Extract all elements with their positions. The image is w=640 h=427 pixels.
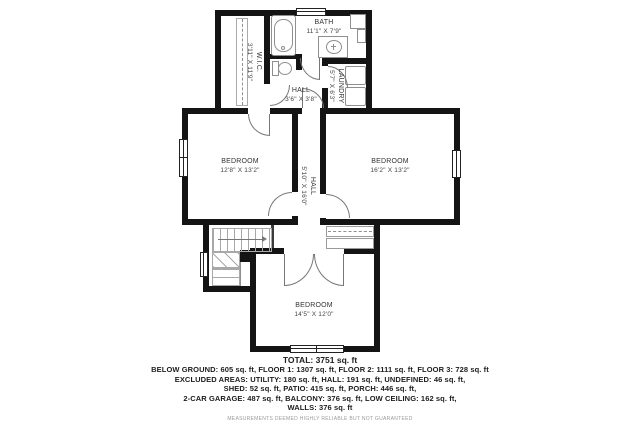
disclaimer-text: MEASUREMENTS DEEMED HIGHLY RELIABLE BUT … — [0, 416, 640, 422]
summary-line: BELOW GROUND: 605 sq. ft, FLOOR 1: 1307 … — [0, 365, 640, 375]
summary-line: SHED: 52 sq. ft, PATIO: 415 sq. ft, PORC… — [0, 384, 640, 394]
closet — [326, 238, 374, 249]
room-label-bath: BATH 11'1" X 7'9" — [306, 18, 341, 36]
sink-icon — [326, 40, 342, 54]
room-name: BEDROOM — [294, 301, 333, 310]
floor-plan: BATH 11'1" X 7'9" W.I.C. 3'11" X 11'9" L… — [0, 0, 640, 427]
room-label-hall-main: HALL 5'10" X 16'0" — [299, 166, 317, 205]
room-dims: 11'1" X 7'9" — [306, 27, 341, 36]
room-dims: 3'6" X 3'8" — [285, 95, 317, 104]
washer-icon — [345, 66, 366, 85]
wall-segment — [322, 58, 372, 64]
room-label-wic: W.I.C. 3'11" X 11'9" — [245, 43, 263, 81]
window — [200, 252, 208, 277]
wall-segment — [320, 108, 326, 194]
stairs-treads — [212, 268, 240, 286]
room-dims: 5'10" X 16'0" — [299, 166, 308, 205]
room-name: BEDROOM — [220, 157, 259, 166]
room-dims: 16'2" X 13'2" — [370, 166, 409, 175]
summary-line: EXCLUDED AREAS: UTILITY: 180 sq. ft, HAL… — [0, 375, 640, 385]
room-label-bedroom-left: BEDROOM 12'8" X 13'2" — [220, 157, 259, 175]
room-dims: 14'5" X 12'0" — [294, 310, 333, 319]
area-summary: TOTAL: 3751 sq. ft BELOW GROUND: 605 sq.… — [0, 355, 640, 422]
bath-shelf — [357, 29, 366, 43]
door-arc-french-right — [314, 254, 344, 286]
room-name: W.I.C. — [254, 43, 263, 81]
room-name: BATH — [306, 18, 341, 27]
room-name: HALL — [285, 86, 317, 95]
stairs-arrow-head — [262, 236, 267, 242]
window-mullion — [203, 253, 204, 276]
window-mullion — [297, 11, 325, 12]
window — [290, 345, 344, 353]
window-mullion — [456, 151, 457, 177]
stairs-arrow — [218, 239, 262, 240]
room-label-bedroom-bottom: BEDROOM 14'5" X 12'0" — [294, 301, 333, 319]
wall-segment — [203, 286, 256, 292]
wall-segment — [182, 108, 248, 114]
door-arc-french-left — [284, 254, 314, 286]
window — [296, 8, 326, 16]
wall-segment — [320, 219, 460, 225]
room-label-bedroom-right: BEDROOM 16'2" X 13'2" — [370, 157, 409, 175]
room-name: BEDROOM — [370, 157, 409, 166]
wall-segment — [215, 10, 221, 114]
window-mullion — [291, 348, 343, 349]
toilet-icon — [278, 62, 292, 75]
window-mullion — [180, 157, 187, 158]
window-mullion — [183, 140, 184, 176]
summary-line: WALLS: 376 sq. ft — [0, 403, 640, 413]
wall-segment — [182, 219, 298, 225]
door-arc-bedroom-right — [326, 194, 350, 218]
room-label-hall-upper: HALL 3'6" X 3'8" — [285, 86, 317, 104]
sink-faucet-icon — [333, 44, 334, 50]
room-label-laundry: LAUNDRY 5'7" X 6'3" — [327, 69, 345, 104]
summary-total: TOTAL: 3751 sq. ft — [0, 355, 640, 365]
closet-rod — [328, 231, 372, 232]
door-arc-bedroom-left-side — [268, 192, 292, 216]
room-dims: 5'7" X 6'3" — [327, 69, 336, 104]
door-arc-bedroom-left-top — [248, 114, 270, 136]
wall-segment — [292, 108, 298, 192]
bath-shelf — [350, 14, 366, 29]
wall-segment — [322, 58, 328, 66]
wall-segment — [374, 225, 380, 352]
room-name: HALL — [308, 166, 317, 205]
room-dims: 12'8" X 13'2" — [220, 166, 259, 175]
wall-segment — [324, 108, 460, 114]
door-arc-bath — [300, 58, 320, 80]
dryer-icon — [345, 87, 366, 106]
stairs-edge — [240, 262, 241, 286]
sink-faucet-icon — [331, 46, 336, 47]
room-dims: 3'11" X 11'9" — [245, 43, 254, 81]
summary-line: 2-CAR GARAGE: 487 sq. ft, BALCONY: 376 s… — [0, 394, 640, 404]
bathtub-drain-icon — [281, 46, 285, 50]
wall-segment — [264, 10, 270, 84]
room-name: LAUNDRY — [336, 69, 345, 104]
closet-rod — [242, 19, 243, 105]
wall-segment — [250, 248, 256, 352]
stairs-winder — [212, 252, 240, 268]
window-mullion — [316, 346, 317, 352]
